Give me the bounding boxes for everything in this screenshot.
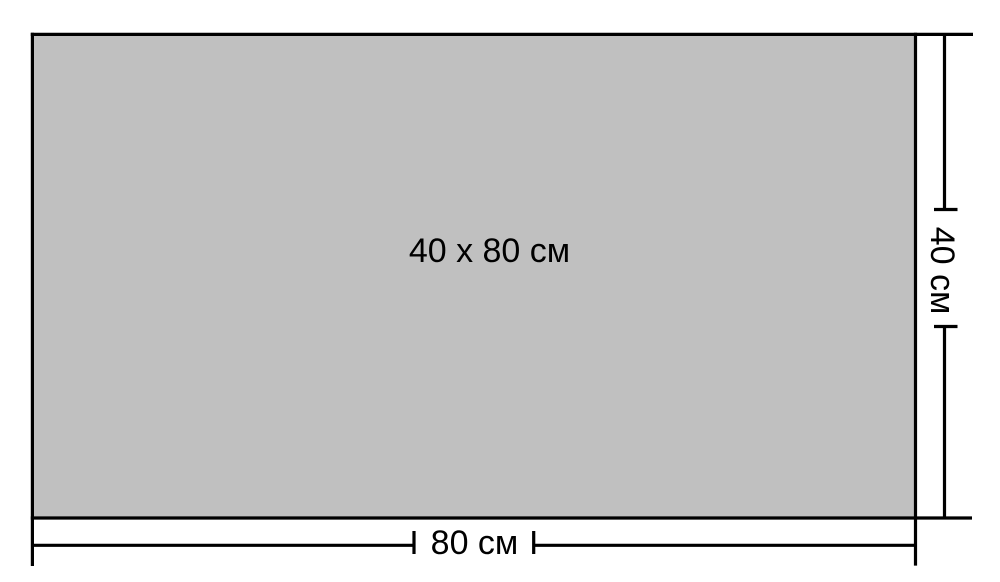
svg-text:40 см: 40 см	[923, 227, 961, 315]
svg-text:40 x 80 см: 40 x 80 см	[409, 232, 570, 270]
svg-text:80 см: 80 см	[431, 524, 519, 562]
